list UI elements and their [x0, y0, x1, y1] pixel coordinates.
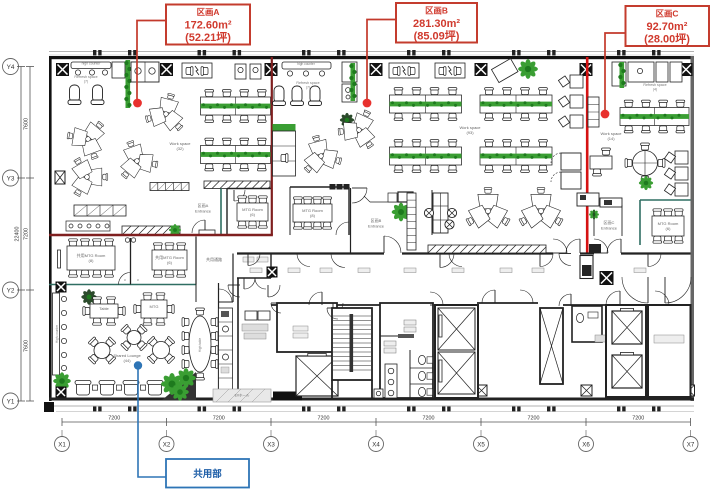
svg-text:(6): (6) — [167, 260, 173, 265]
svg-text:EVホール: EVホール — [235, 393, 250, 398]
svg-text:172.60m²: 172.60m² — [184, 20, 231, 32]
svg-text:区画C: 区画C — [604, 220, 615, 225]
svg-text:(8): (8) — [310, 213, 316, 218]
svg-text:X7: X7 — [687, 441, 695, 448]
svg-text:Entrance: Entrance — [195, 209, 212, 214]
svg-text:X1: X1 — [58, 441, 66, 448]
svg-text:281.30m²: 281.30m² — [413, 18, 460, 30]
svg-text:共用部: 共用部 — [193, 468, 222, 480]
svg-text:7200: 7200 — [528, 416, 540, 422]
svg-text:X2: X2 — [163, 441, 171, 448]
svg-text:7200: 7200 — [423, 416, 435, 422]
svg-text:X4: X4 — [372, 441, 380, 448]
svg-text:Refresh space: Refresh space — [643, 83, 666, 87]
svg-text:Refresh space: Refresh space — [296, 81, 319, 85]
svg-text:(4): (4) — [653, 88, 657, 92]
svg-text:Entrance: Entrance — [368, 224, 385, 229]
svg-text:High counter: High counter — [55, 324, 59, 343]
svg-text:区画B: 区画B — [371, 218, 382, 223]
svg-text:22400: 22400 — [15, 227, 21, 242]
svg-text:7200: 7200 — [632, 416, 644, 422]
svg-text:high counter: high counter — [82, 62, 102, 66]
svg-text:7200: 7200 — [108, 416, 120, 422]
svg-text:共用通路: 共用通路 — [206, 256, 222, 262]
svg-text:(44): (44) — [123, 358, 131, 363]
svg-text:Refresh space: Refresh space — [74, 75, 97, 79]
svg-text:7200: 7200 — [213, 416, 225, 422]
svg-text:区画C: 区画C — [656, 9, 679, 19]
svg-text:7200: 7200 — [24, 228, 30, 240]
svg-text:(52.21坪): (52.21坪) — [185, 31, 231, 44]
svg-text:Y2: Y2 — [7, 287, 15, 294]
svg-text:(6): (6) — [250, 212, 256, 217]
svg-text:X6: X6 — [582, 441, 590, 448]
svg-text:区画B: 区画B — [425, 6, 448, 16]
svg-text:Y1: Y1 — [7, 398, 15, 405]
svg-text:Y3: Y3 — [7, 175, 15, 182]
svg-text:X3: X3 — [267, 441, 275, 448]
svg-text:(6): (6) — [666, 226, 672, 231]
svg-text:MTG: MTG — [150, 304, 159, 309]
svg-text:high counter: high counter — [297, 62, 315, 66]
svg-text:(7): (7) — [306, 86, 310, 90]
svg-text:Table: Table — [99, 306, 109, 311]
svg-text:7600: 7600 — [24, 340, 30, 352]
svg-text:(85.09坪): (85.09坪) — [414, 30, 460, 43]
svg-text:Y4: Y4 — [7, 64, 15, 71]
svg-text:(32): (32) — [176, 146, 184, 151]
svg-text:High table: High table — [198, 338, 202, 353]
svg-text:7200: 7200 — [318, 416, 330, 422]
svg-text:X5: X5 — [477, 441, 485, 448]
svg-text:区画A: 区画A — [198, 203, 209, 208]
svg-text:(8): (8) — [89, 258, 95, 263]
svg-text:92.70m²: 92.70m² — [647, 21, 688, 33]
svg-text:(7): (7) — [84, 80, 88, 84]
svg-text:(93): (93) — [466, 130, 474, 135]
svg-text:7600: 7600 — [24, 118, 30, 130]
svg-text:(14): (14) — [607, 136, 615, 141]
svg-text:(28.00坪): (28.00坪) — [644, 33, 690, 46]
svg-text:Entrance: Entrance — [601, 226, 618, 231]
svg-text:区画A: 区画A — [197, 7, 220, 17]
